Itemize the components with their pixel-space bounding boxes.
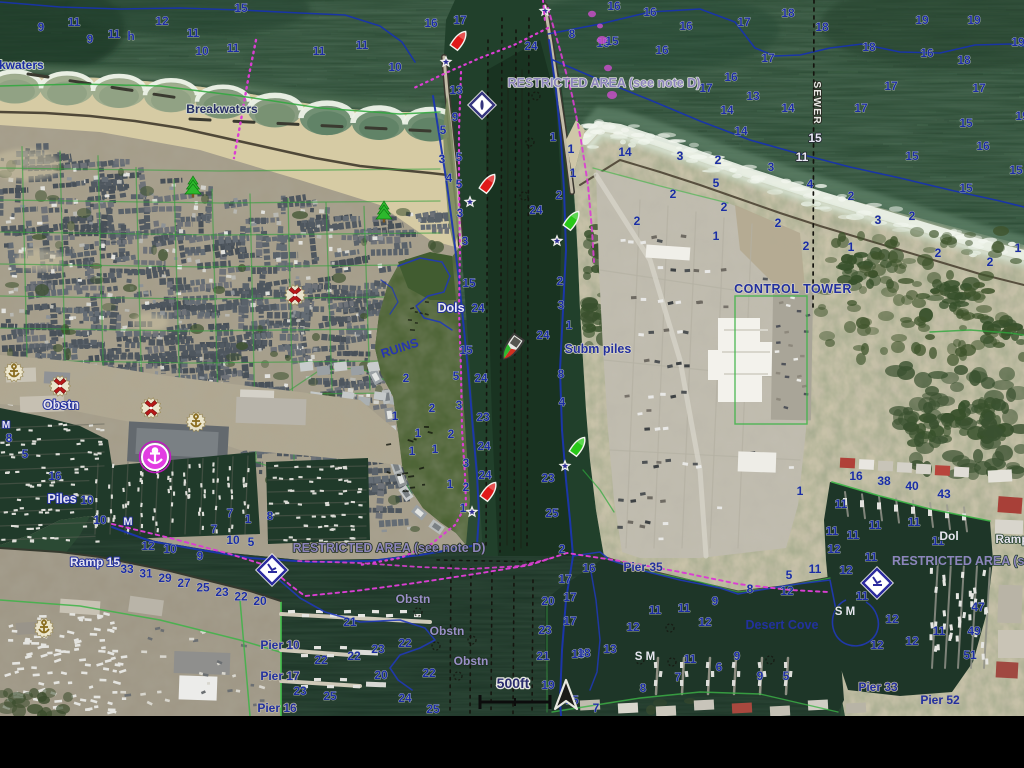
svg-text:3: 3 xyxy=(677,149,684,163)
svg-text:1: 1 xyxy=(550,130,557,144)
svg-text:13: 13 xyxy=(603,642,617,656)
svg-text:31: 31 xyxy=(139,567,153,581)
svg-text:Subm piles: Subm piles xyxy=(565,342,632,356)
svg-text:19: 19 xyxy=(967,13,981,27)
svg-text:23: 23 xyxy=(476,410,490,424)
svg-text:8: 8 xyxy=(6,431,13,445)
svg-text:17: 17 xyxy=(972,81,986,95)
svg-text:15: 15 xyxy=(959,116,973,130)
svg-text:5: 5 xyxy=(456,177,463,191)
svg-text:21: 21 xyxy=(343,615,357,629)
svg-text:10: 10 xyxy=(226,533,240,547)
svg-text:20: 20 xyxy=(253,594,267,608)
svg-text:1: 1 xyxy=(392,409,399,423)
svg-text:6: 6 xyxy=(716,660,723,674)
svg-text:18: 18 xyxy=(815,20,829,34)
svg-text:4: 4 xyxy=(807,177,814,191)
svg-text:12: 12 xyxy=(905,634,919,648)
svg-text:38: 38 xyxy=(877,474,891,488)
svg-text:17: 17 xyxy=(699,81,713,95)
svg-text:1: 1 xyxy=(570,166,577,180)
svg-text:2: 2 xyxy=(848,189,855,203)
svg-text:1: 1 xyxy=(713,229,720,243)
svg-text:19: 19 xyxy=(915,13,929,27)
svg-text:Pier 52: Pier 52 xyxy=(920,693,960,707)
svg-text:15: 15 xyxy=(459,343,473,357)
svg-text:18: 18 xyxy=(577,646,591,660)
svg-text:9: 9 xyxy=(757,669,764,683)
svg-text:2: 2 xyxy=(721,200,728,214)
svg-text:RESTRICTED AREA (see note D): RESTRICTED AREA (see note D) xyxy=(508,76,701,90)
svg-text:11: 11 xyxy=(856,589,869,603)
svg-text:1: 1 xyxy=(568,142,575,156)
svg-text:11: 11 xyxy=(835,497,848,511)
svg-text:2: 2 xyxy=(715,153,722,167)
svg-text:49: 49 xyxy=(967,624,981,638)
svg-text:15: 15 xyxy=(1009,163,1023,177)
svg-text:22: 22 xyxy=(422,666,436,680)
svg-text:2: 2 xyxy=(803,239,810,253)
svg-text:11: 11 xyxy=(108,27,121,41)
svg-text:23: 23 xyxy=(215,585,229,599)
svg-text:12: 12 xyxy=(839,563,853,577)
svg-text:19: 19 xyxy=(1015,109,1024,123)
svg-text:3: 3 xyxy=(768,160,775,174)
svg-text:16: 16 xyxy=(849,469,863,483)
svg-text:akwaters: akwaters xyxy=(0,58,44,72)
svg-text:9: 9 xyxy=(734,649,741,663)
svg-text:8: 8 xyxy=(569,27,576,41)
svg-text:17: 17 xyxy=(563,614,577,628)
svg-text:33: 33 xyxy=(120,562,134,576)
svg-text:3: 3 xyxy=(558,298,565,312)
svg-text:23: 23 xyxy=(538,623,552,637)
svg-text:CONTROL TOWER: CONTROL TOWER xyxy=(734,282,852,296)
svg-text:Ramp 15: Ramp 15 xyxy=(70,555,120,569)
svg-text:24: 24 xyxy=(398,691,412,705)
svg-text:13: 13 xyxy=(746,89,760,103)
svg-text:2: 2 xyxy=(448,427,455,441)
svg-text:25: 25 xyxy=(196,580,210,594)
svg-text:Pier 17: Pier 17 xyxy=(260,669,300,683)
svg-text:16: 16 xyxy=(643,5,657,19)
svg-text:23: 23 xyxy=(541,471,555,485)
svg-text:Ramp: Ramp xyxy=(995,532,1024,546)
svg-text:500ft: 500ft xyxy=(497,675,530,691)
svg-text:10: 10 xyxy=(195,44,209,58)
svg-text:15: 15 xyxy=(905,149,919,163)
svg-text:11: 11 xyxy=(865,550,878,564)
svg-text:12: 12 xyxy=(698,615,712,629)
svg-text:3: 3 xyxy=(456,398,463,412)
svg-text:16: 16 xyxy=(655,43,669,57)
svg-text:Dols: Dols xyxy=(437,301,464,315)
svg-text:2: 2 xyxy=(429,401,436,415)
svg-text:24: 24 xyxy=(536,328,550,342)
svg-text:24: 24 xyxy=(471,301,485,315)
svg-text:11: 11 xyxy=(227,41,240,55)
svg-text:2: 2 xyxy=(987,255,994,269)
svg-text:15: 15 xyxy=(234,1,248,15)
svg-text:Obstn: Obstn xyxy=(396,592,431,606)
svg-text:1: 1 xyxy=(460,501,467,515)
svg-text:1: 1 xyxy=(566,318,573,332)
svg-text:16: 16 xyxy=(48,469,62,483)
svg-text:16: 16 xyxy=(424,16,438,30)
svg-text:11: 11 xyxy=(796,150,809,164)
svg-text:5: 5 xyxy=(22,447,29,461)
svg-text:2: 2 xyxy=(670,187,677,201)
svg-text:4: 4 xyxy=(446,171,453,185)
svg-text:12: 12 xyxy=(155,14,169,28)
svg-text:Piles: Piles xyxy=(47,492,76,506)
svg-text:51: 51 xyxy=(963,648,977,662)
svg-text:8: 8 xyxy=(267,509,274,523)
svg-text:12: 12 xyxy=(827,542,841,556)
svg-text:11: 11 xyxy=(684,652,697,666)
svg-text:22: 22 xyxy=(314,653,328,667)
svg-text:11: 11 xyxy=(678,601,691,615)
svg-text:2: 2 xyxy=(403,371,410,385)
svg-text:17: 17 xyxy=(737,15,751,29)
svg-text:25: 25 xyxy=(323,689,337,703)
svg-text:RESTRICTED AREA (se: RESTRICTED AREA (se xyxy=(892,554,1024,568)
svg-text:24: 24 xyxy=(529,203,543,217)
svg-text:8: 8 xyxy=(558,367,565,381)
svg-text:17: 17 xyxy=(854,101,868,115)
svg-text:S M: S M xyxy=(835,606,855,618)
svg-text:2: 2 xyxy=(556,188,563,202)
svg-text:5: 5 xyxy=(713,176,720,190)
svg-text:2: 2 xyxy=(559,542,566,556)
svg-text:16: 16 xyxy=(920,46,934,60)
svg-text:22: 22 xyxy=(234,590,248,604)
svg-text:Dol: Dol xyxy=(939,529,958,543)
svg-text:17: 17 xyxy=(884,79,898,93)
svg-text:22: 22 xyxy=(398,636,412,650)
svg-text:8: 8 xyxy=(747,582,754,596)
svg-text:2: 2 xyxy=(557,274,564,288)
svg-text:11: 11 xyxy=(68,15,81,29)
svg-text:12: 12 xyxy=(780,584,794,598)
svg-text:Pier 16: Pier 16 xyxy=(257,701,297,715)
svg-text:1: 1 xyxy=(432,442,439,456)
svg-text:5: 5 xyxy=(440,123,447,137)
svg-text:27: 27 xyxy=(177,576,191,590)
svg-text:Obstn: Obstn xyxy=(454,654,489,668)
svg-text:3: 3 xyxy=(457,206,464,220)
svg-text:19: 19 xyxy=(541,678,555,692)
svg-text:25: 25 xyxy=(545,506,559,520)
svg-text:7: 7 xyxy=(593,701,600,715)
svg-text:24: 24 xyxy=(477,439,491,453)
svg-text:Desert Cove: Desert Cove xyxy=(746,618,819,632)
svg-text:5: 5 xyxy=(786,568,793,582)
svg-text:SEWER: SEWER xyxy=(811,81,823,125)
svg-text:RESTRICTED AREA (see note D): RESTRICTED AREA (see note D) xyxy=(293,541,486,555)
svg-text:5: 5 xyxy=(456,150,463,164)
svg-text:9: 9 xyxy=(87,32,94,46)
svg-text:29: 29 xyxy=(158,571,172,585)
svg-text:2: 2 xyxy=(463,480,470,494)
svg-text:7: 7 xyxy=(227,506,234,520)
svg-text:2: 2 xyxy=(775,216,782,230)
svg-text:10: 10 xyxy=(388,60,402,74)
svg-text:10: 10 xyxy=(163,542,177,556)
svg-text:2: 2 xyxy=(634,214,641,228)
svg-text:3: 3 xyxy=(462,234,469,248)
svg-text:23: 23 xyxy=(293,684,307,698)
svg-text:1: 1 xyxy=(415,426,422,440)
svg-text:24: 24 xyxy=(474,371,488,385)
svg-text:1: 1 xyxy=(1015,241,1022,255)
svg-text:9: 9 xyxy=(452,110,459,124)
svg-text:24: 24 xyxy=(524,39,538,53)
svg-text:Pier 35: Pier 35 xyxy=(623,560,663,574)
svg-text:2: 2 xyxy=(935,246,942,260)
svg-text:M: M xyxy=(2,420,10,431)
svg-text:10: 10 xyxy=(80,493,94,507)
svg-text:Breakwaters: Breakwaters xyxy=(186,102,258,116)
svg-text:3: 3 xyxy=(463,456,470,470)
svg-text:Obstn: Obstn xyxy=(43,398,79,412)
svg-text:9: 9 xyxy=(38,20,45,34)
svg-text:2: 2 xyxy=(909,209,916,223)
svg-text:10: 10 xyxy=(93,513,107,527)
svg-text:16: 16 xyxy=(976,139,990,153)
svg-text:5: 5 xyxy=(783,669,790,683)
svg-text:Pier 33: Pier 33 xyxy=(858,680,898,694)
svg-text:1: 1 xyxy=(447,477,454,491)
svg-text:24: 24 xyxy=(478,468,492,482)
svg-text:21: 21 xyxy=(536,649,550,663)
svg-text:20: 20 xyxy=(374,668,388,682)
svg-text:1: 1 xyxy=(245,512,252,526)
svg-text:19: 19 xyxy=(1011,35,1024,49)
svg-text:40: 40 xyxy=(905,479,919,493)
svg-text:11: 11 xyxy=(826,524,839,538)
svg-text:1: 1 xyxy=(409,444,416,458)
svg-text:16: 16 xyxy=(679,19,693,33)
svg-text:7: 7 xyxy=(675,670,682,684)
svg-text:23: 23 xyxy=(371,642,385,656)
svg-text:S M: S M xyxy=(635,651,655,663)
svg-text:17: 17 xyxy=(558,572,572,586)
svg-text:3: 3 xyxy=(875,213,882,227)
svg-text:11: 11 xyxy=(847,528,860,542)
svg-text:43: 43 xyxy=(937,487,951,501)
svg-text:7: 7 xyxy=(211,522,218,536)
svg-text:18: 18 xyxy=(957,53,971,67)
svg-text:14: 14 xyxy=(781,101,795,115)
svg-text:18: 18 xyxy=(781,6,795,20)
svg-text:3: 3 xyxy=(439,152,446,166)
svg-text:Obstn: Obstn xyxy=(430,624,465,638)
svg-text:18: 18 xyxy=(862,40,876,54)
svg-text:22: 22 xyxy=(347,649,361,663)
svg-text:11: 11 xyxy=(187,26,200,40)
svg-text:12: 12 xyxy=(870,638,884,652)
svg-text:15: 15 xyxy=(605,34,619,48)
svg-text:17: 17 xyxy=(453,13,467,27)
svg-text:16: 16 xyxy=(724,70,738,84)
svg-text:15: 15 xyxy=(808,131,822,145)
svg-text:8: 8 xyxy=(640,681,647,695)
svg-text:16: 16 xyxy=(582,561,596,575)
svg-text:12: 12 xyxy=(626,620,640,634)
svg-text:Pier 10: Pier 10 xyxy=(260,638,300,652)
svg-text:9: 9 xyxy=(712,594,719,608)
svg-text:15: 15 xyxy=(959,181,973,195)
svg-text:14: 14 xyxy=(734,124,748,138)
svg-text:M: M xyxy=(123,516,132,528)
svg-text:11: 11 xyxy=(869,518,882,532)
svg-text:9: 9 xyxy=(197,549,204,563)
svg-text:16: 16 xyxy=(607,0,621,13)
svg-text:1: 1 xyxy=(797,484,804,498)
svg-text:15: 15 xyxy=(462,276,476,290)
svg-text:47: 47 xyxy=(971,600,985,614)
svg-text:5: 5 xyxy=(248,535,255,549)
svg-text:11: 11 xyxy=(649,603,662,617)
svg-text:14: 14 xyxy=(720,103,734,117)
svg-text:1: 1 xyxy=(848,240,855,254)
svg-text:17: 17 xyxy=(761,51,775,65)
svg-text:11: 11 xyxy=(933,624,946,638)
svg-text:17: 17 xyxy=(563,590,577,604)
svg-text:11: 11 xyxy=(809,562,822,576)
svg-text:25: 25 xyxy=(426,702,440,716)
svg-text:20: 20 xyxy=(541,594,555,608)
svg-text:12: 12 xyxy=(141,539,155,553)
svg-text:11: 11 xyxy=(313,44,326,58)
svg-text:11: 11 xyxy=(908,515,921,529)
svg-text:4: 4 xyxy=(559,395,566,409)
svg-text:h: h xyxy=(127,29,134,43)
svg-text:13: 13 xyxy=(449,83,463,97)
svg-text:11: 11 xyxy=(356,38,369,52)
svg-text:14: 14 xyxy=(618,145,632,159)
svg-text:5: 5 xyxy=(453,369,460,383)
svg-text:12: 12 xyxy=(885,612,899,626)
